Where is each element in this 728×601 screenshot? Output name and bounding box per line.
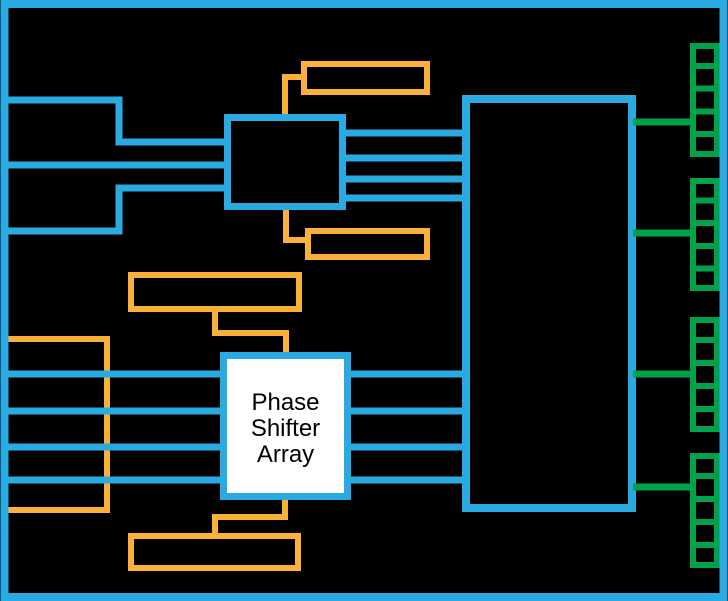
input-line-3 (4, 188, 228, 231)
control-box-top (304, 64, 427, 92)
control-box-bottom (131, 536, 298, 568)
antenna-array-1-frame (693, 46, 717, 154)
antenna-array-2 (690, 181, 720, 288)
antenna-layer (633, 46, 720, 565)
phase-shifter-array-label-line3: Array (257, 441, 314, 468)
antenna-array-4-frame (693, 456, 717, 565)
bus-lines-right (347, 374, 466, 480)
control-bracket-left (2, 339, 107, 510)
control-box-bottom-connector (215, 496, 285, 536)
phase-shifter-array-block: Phase Shifter Array (224, 356, 348, 497)
splitter-output-lines (342, 133, 466, 198)
splitter-block (228, 118, 343, 207)
control-box-middle-connector (215, 312, 286, 356)
input-line-1 (4, 100, 228, 142)
control-box-upper-connector (286, 206, 305, 240)
phase-shifter-array-label-line1: Phase (251, 389, 319, 416)
antenna-array-1 (690, 46, 720, 154)
bus-lines-left (4, 374, 224, 480)
antenna-array-3-frame (693, 320, 717, 429)
antenna-array-2-frame (693, 181, 717, 288)
control-box-upper (308, 231, 427, 257)
circuit-diagram: Phase Shifter Array (0, 0, 728, 601)
antenna-array-4 (690, 456, 720, 565)
control-box-middle (131, 275, 299, 309)
distribution-block (466, 99, 632, 508)
antenna-array-3 (690, 320, 720, 429)
phase-shifter-array-label-line2: Shifter (251, 415, 320, 442)
control-box-top-connector (285, 77, 301, 118)
diagram-canvas: Phase Shifter Array (0, 0, 728, 601)
